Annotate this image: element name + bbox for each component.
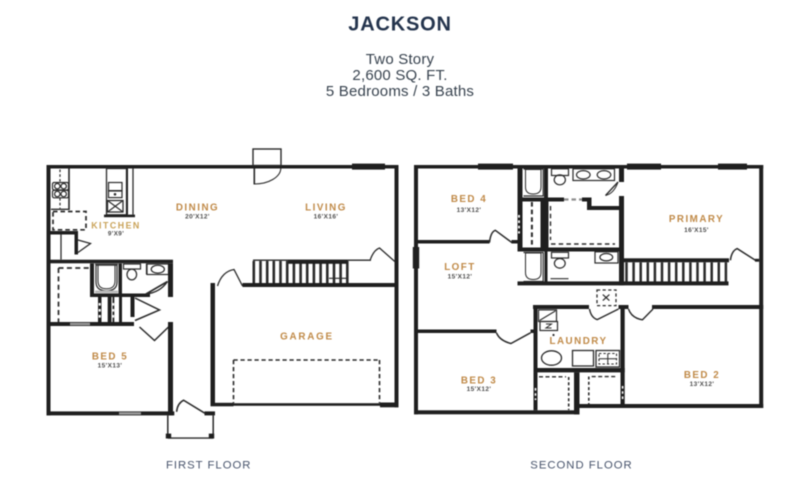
svg-text:SECOND FLOOR: SECOND FLOOR (530, 460, 632, 472)
svg-text:16'X15': 16'X15' (684, 227, 709, 234)
svg-text:JACKSON: JACKSON (348, 14, 451, 36)
svg-text:16'X16': 16'X16' (314, 214, 339, 221)
svg-text:LAUNDRY: LAUNDRY (549, 336, 607, 347)
svg-text:20'X12': 20'X12' (185, 214, 210, 221)
svg-text:Two Story: Two Story (366, 51, 435, 68)
svg-text:BED 2: BED 2 (684, 370, 720, 381)
svg-text:5 Bedrooms / 3 Baths: 5 Bedrooms / 3 Baths (326, 83, 474, 100)
svg-text:BED 3: BED 3 (461, 376, 497, 387)
svg-text:BED 4: BED 4 (451, 194, 487, 205)
svg-text:15'X12': 15'X12' (448, 273, 473, 280)
svg-text:KITCHEN: KITCHEN (91, 221, 141, 231)
svg-text:LIVING: LIVING (305, 202, 347, 213)
svg-text:DINING: DINING (176, 202, 219, 213)
svg-text:15'X13': 15'X13' (98, 362, 123, 369)
svg-text:LOFT: LOFT (444, 262, 476, 273)
svg-text:9'X9': 9'X9' (108, 230, 124, 237)
svg-text:GARAGE: GARAGE (280, 332, 334, 343)
svg-text:15'X12': 15'X12' (467, 386, 492, 393)
svg-text:FIRST FLOOR: FIRST FLOOR (166, 460, 251, 472)
svg-text:13'X12': 13'X12' (457, 207, 482, 214)
svg-text:BED 5: BED 5 (92, 352, 128, 363)
svg-text:2,600 SQ. FT.: 2,600 SQ. FT. (352, 67, 447, 84)
svg-text:PRIMARY: PRIMARY (669, 214, 724, 225)
svg-text:13'X12': 13'X12' (690, 381, 715, 388)
